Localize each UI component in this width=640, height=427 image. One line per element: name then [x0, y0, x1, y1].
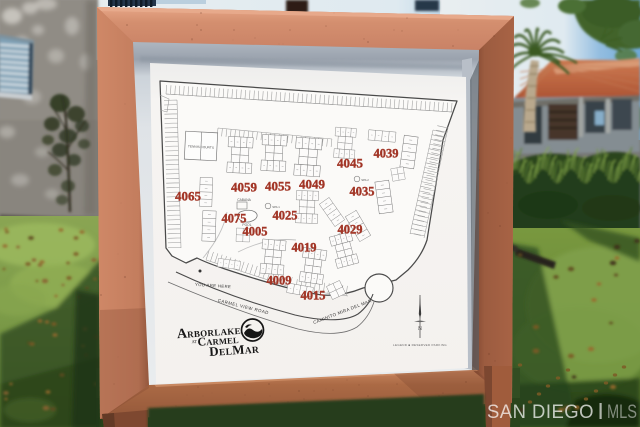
svg-text:4005: 4005 [243, 225, 268, 239]
svg-text:4075: 4075 [222, 212, 247, 226]
svg-text:4045: 4045 [337, 156, 364, 171]
svg-text:4035: 4035 [350, 185, 375, 199]
svg-text:4025: 4025 [273, 209, 298, 223]
svg-text:CABANA: CABANA [237, 198, 251, 202]
svg-text:SPA 2: SPA 2 [361, 178, 369, 182]
svg-text:N: N [418, 326, 422, 332]
svg-text:4055: 4055 [265, 179, 292, 194]
svg-text:4065: 4065 [175, 189, 202, 204]
svg-text:MLS: MLS [607, 402, 637, 423]
svg-text:4029: 4029 [338, 223, 363, 237]
svg-text:LEGEND ■ RESERVED PARKING: LEGEND ■ RESERVED PARKING [393, 343, 447, 347]
svg-text:4039: 4039 [374, 147, 399, 161]
svg-text:4059: 4059 [231, 180, 258, 195]
svg-text:4019: 4019 [292, 241, 317, 255]
svg-text:SAN DIEGO: SAN DIEGO [487, 402, 594, 423]
svg-text:4015: 4015 [301, 289, 326, 303]
svg-text:4009: 4009 [267, 274, 292, 288]
svg-text:4049: 4049 [299, 177, 326, 192]
